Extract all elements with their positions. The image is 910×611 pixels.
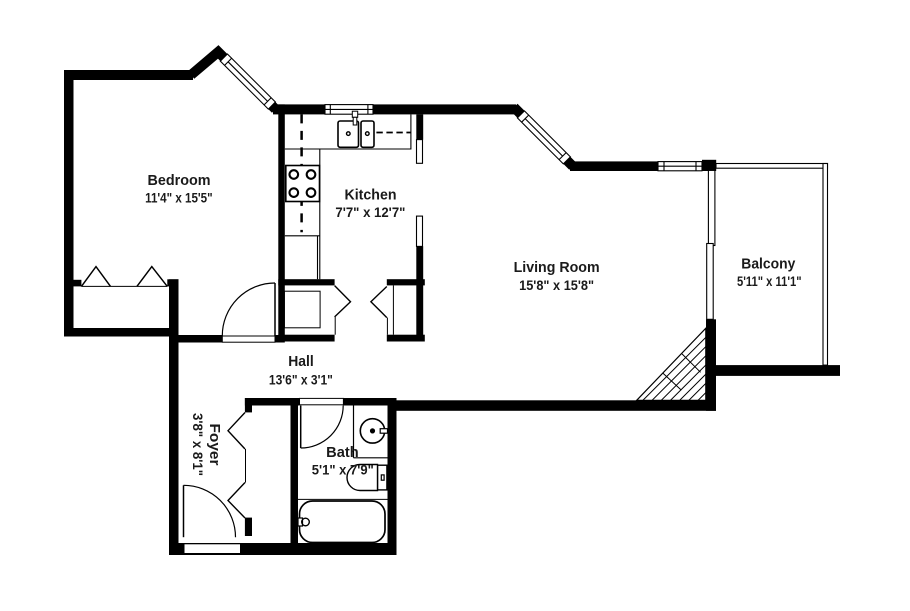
svg-text:11'4" x 15'5": 11'4" x 15'5" bbox=[145, 191, 213, 207]
svg-text:Kitchen: Kitchen bbox=[345, 188, 397, 204]
svg-text:13'6" x 3'1": 13'6" x 3'1" bbox=[269, 373, 333, 389]
svg-text:Bath: Bath bbox=[326, 445, 359, 461]
svg-text:Balcony: Balcony bbox=[741, 257, 796, 273]
svg-text:Living Room: Living Room bbox=[514, 260, 600, 276]
svg-text:Hall: Hall bbox=[288, 354, 314, 370]
svg-text:5'1" x 7'9": 5'1" x 7'9" bbox=[312, 462, 374, 478]
svg-text:Foyer: Foyer bbox=[206, 424, 222, 466]
svg-text:7'7" x 12'7": 7'7" x 12'7" bbox=[335, 205, 405, 221]
svg-text:3'8" x 8'1": 3'8" x 8'1" bbox=[189, 413, 205, 476]
svg-text:15'8" x 15'8": 15'8" x 15'8" bbox=[519, 278, 594, 294]
svg-text:5'11" x 11'1": 5'11" x 11'1" bbox=[737, 274, 802, 290]
svg-text:Bedroom: Bedroom bbox=[148, 173, 211, 189]
